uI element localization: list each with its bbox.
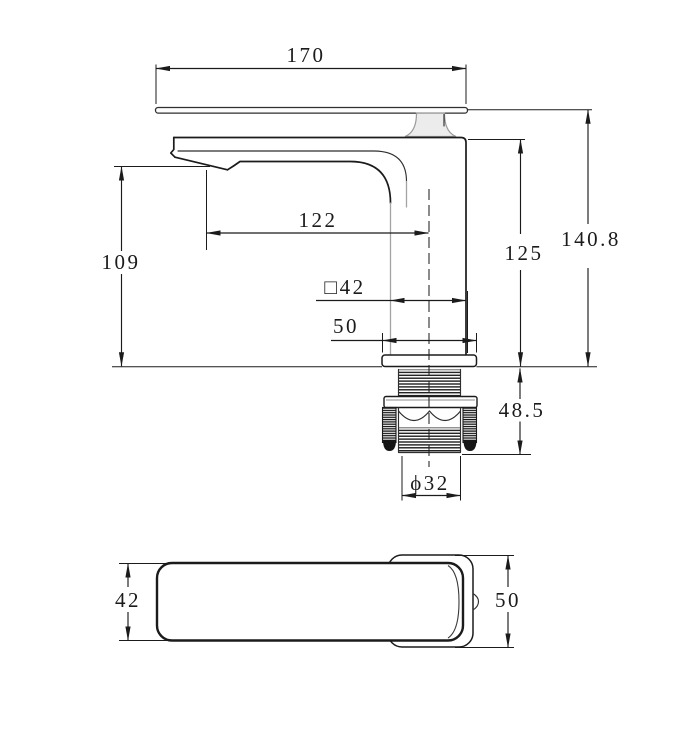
dim-label-overall-width: 170: [287, 43, 326, 67]
dim-spout-height: 109: [102, 167, 211, 367]
faucet-dimension-drawing: 170 122 109 □42 50: [0, 0, 697, 748]
top-view-drawing: 42 50: [115, 555, 521, 648]
side-view-drawing: 170 122 109 □42 50: [102, 43, 621, 501]
right-stud-tip: [464, 440, 477, 451]
dim-label-base-width: 50: [333, 314, 359, 338]
spout-tip-outline: [171, 138, 175, 158]
dim-overall-width: 170: [156, 43, 466, 104]
dim-height-to-body-top: 125: [468, 140, 544, 367]
handle-top-view-outline: [157, 563, 463, 641]
dim-top-body-width: 50: [455, 556, 521, 648]
left-stud-tip: [383, 440, 396, 451]
dim-label-under-counter: 48.5: [499, 398, 546, 422]
dim-base-width: 50: [331, 314, 477, 353]
shank-washer: [384, 397, 477, 408]
dim-label-handle-width: 42: [115, 588, 141, 612]
dim-label-spout-reach: 122: [299, 208, 338, 232]
dim-shank-diameter: ϕ32: [402, 456, 461, 501]
spout-underside-curve: [228, 162, 391, 204]
aerator-face-line: [175, 157, 228, 170]
technical-drawing-page: 170 122 109 □42 50: [0, 0, 697, 748]
dim-label-spout-height: 109: [102, 250, 141, 274]
body-right-outline: [174, 138, 466, 356]
dim-label-height-to-body-top: 125: [505, 241, 544, 265]
dim-label-shank-diameter: ϕ32: [410, 471, 450, 495]
dim-label-top-body-width: 50: [495, 588, 521, 612]
left-mounting-stud: [383, 408, 397, 443]
dim-overall-height: 140.8: [468, 110, 621, 367]
body-side-bump: [473, 594, 479, 611]
stem-flare: [405, 113, 456, 136]
dim-spout-reach: 122: [207, 170, 429, 250]
dim-label-overall-height: 140.8: [561, 227, 621, 251]
dim-label-body-square: □42: [324, 275, 365, 299]
right-mounting-stud: [463, 408, 477, 443]
lever-handle-outline: [156, 108, 468, 114]
